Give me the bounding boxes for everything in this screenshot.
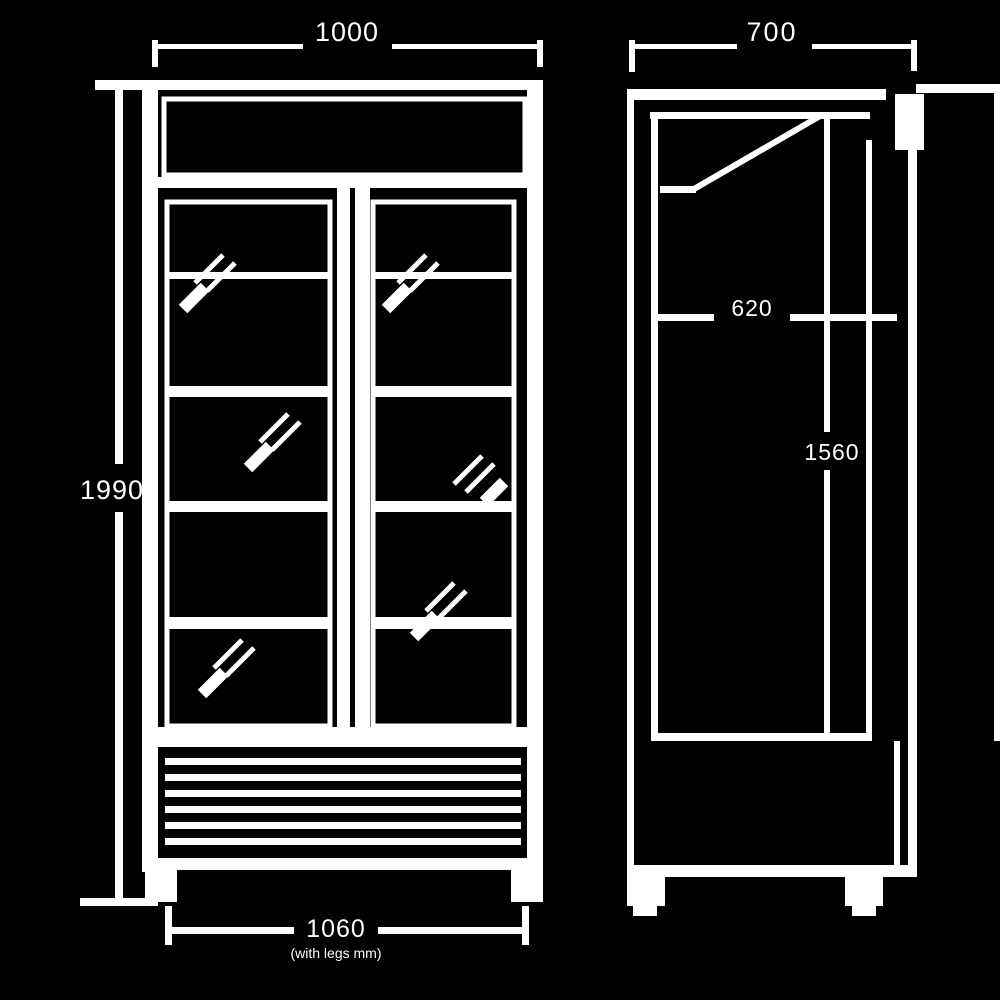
svg-text:620: 620 [731, 295, 772, 321]
svg-text:1990: 1990 [80, 475, 144, 505]
svg-text:1000: 1000 [315, 17, 379, 47]
svg-text:1560: 1560 [804, 439, 859, 465]
svg-text:700: 700 [746, 17, 797, 47]
svg-text:1060: 1060 [306, 915, 366, 943]
svg-text:(with legs mm): (with legs mm) [290, 945, 381, 961]
